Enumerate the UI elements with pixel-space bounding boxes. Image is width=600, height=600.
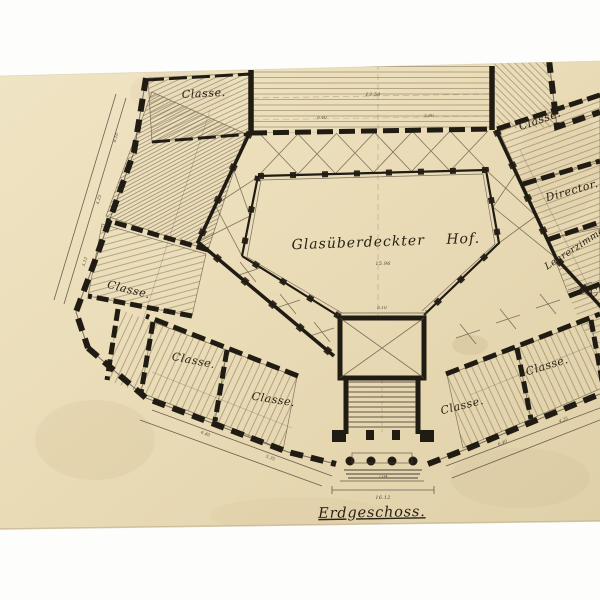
classe-top-left-label: Classe. [182, 86, 227, 101]
dim-hall-left: 6.40 [317, 116, 327, 121]
floor-plan-drawing: Classe. Classe. Director. Lehrerzimmer. … [0, 0, 600, 600]
floor-title: Erdgeschoss. [317, 504, 426, 522]
dim-hall-right: 5.80 [424, 114, 434, 119]
dim-entrance-width: 16.12 [375, 495, 390, 501]
courtyard-value: 15.96 [375, 261, 391, 267]
dim-porch-width: 7.04 [378, 475, 388, 480]
dim-hall-width: 13.50 [365, 92, 381, 98]
dim-court-width: 8.10 [377, 306, 387, 311]
photographed-floor-plan: Classe. Classe. Director. Lehrerzimmer. … [0, 0, 600, 600]
